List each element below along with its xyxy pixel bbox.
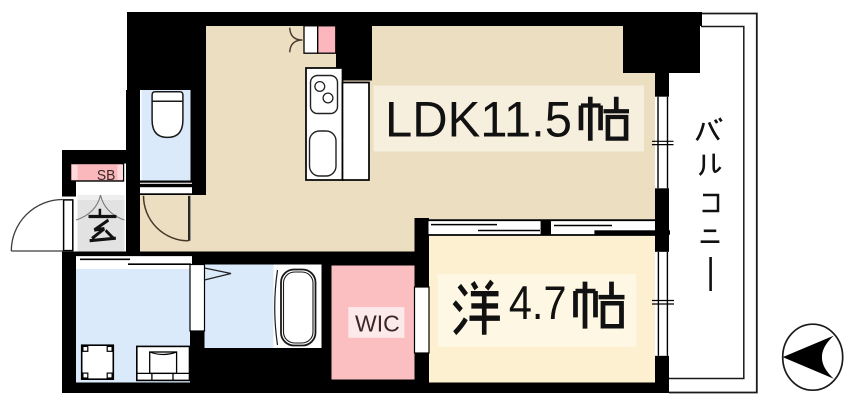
svg-text:SB: SB xyxy=(97,167,116,184)
svg-text:LDK11.5: LDK11.5 xyxy=(385,92,572,148)
svg-text:4.7: 4.7 xyxy=(509,276,567,329)
svg-text:WIC: WIC xyxy=(355,311,400,337)
